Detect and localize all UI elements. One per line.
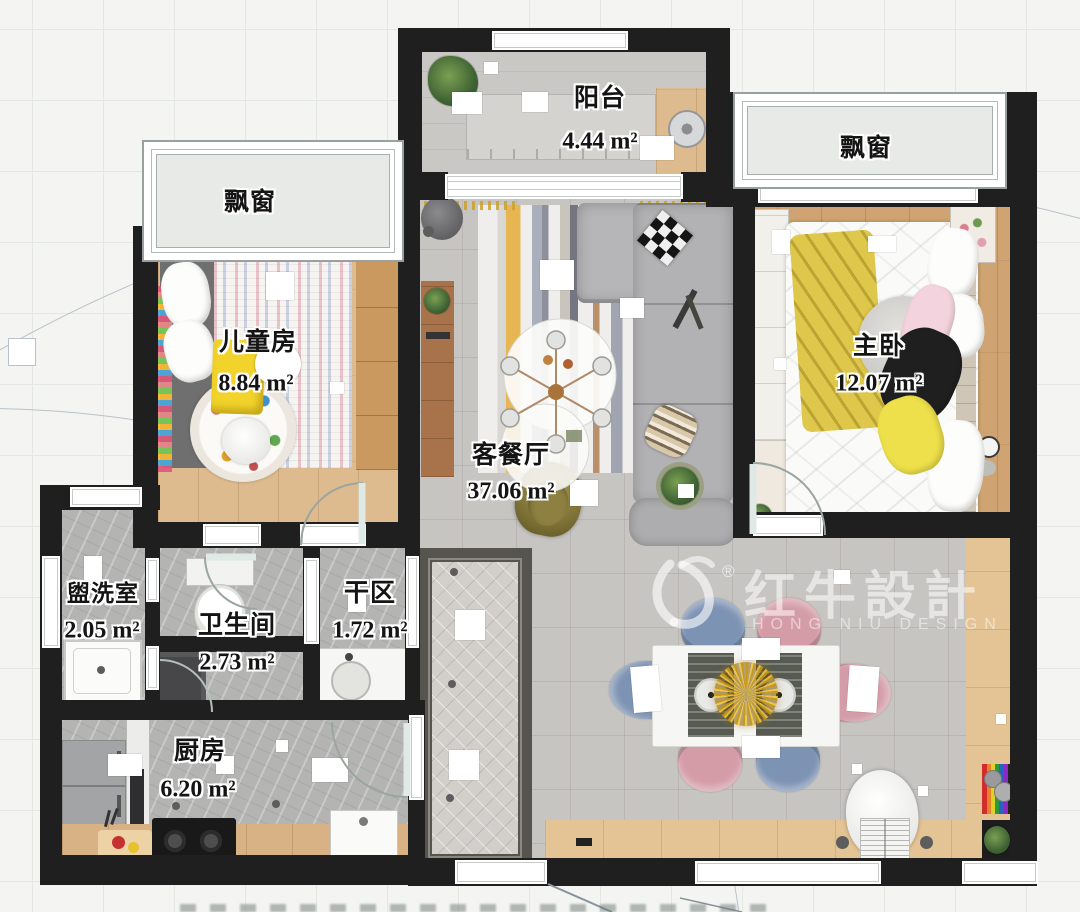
wall [40,700,408,720]
kitchen-tall-cabinet-dark [130,769,144,827]
napkin [742,638,780,660]
entry-door-opening [455,860,547,884]
wall [133,522,420,548]
ceiling-light [774,358,786,370]
kids-stool [222,418,270,464]
label-washroom-area: 2.05 m² [64,618,139,645]
bathroom-dry-slider [304,558,319,644]
dry-area-opening [406,556,419,648]
label-kids-name: 儿童房 [219,322,297,358]
bathroom-door-opening [203,524,261,546]
burner [200,830,222,852]
label-living-name: 客餐厅 [472,435,550,471]
lemon [128,842,139,853]
label-master-name: 主卧 [853,326,905,362]
label-bathroom-area: 2.73 m² [199,650,274,677]
label-bathroom-name: 卫生间 [198,605,276,641]
ceiling-light [570,480,598,506]
washroom-window [70,487,142,507]
napkin [742,736,780,758]
spot-light [423,226,434,237]
ceiling-light [868,236,896,252]
ceiling-light [918,786,928,796]
ceiling-light [484,62,498,74]
label-bay-window-master: 飘窗 [840,128,892,164]
open-book [860,818,910,862]
gold-centerpiece [714,662,778,726]
spot-light [446,794,454,802]
master-door-opening [753,515,823,536]
ceiling-light [312,758,348,782]
corridor-rug-field [432,562,518,854]
wall [40,855,420,885]
ceiling-light [276,740,288,752]
kids-wardrobe [356,252,400,470]
wall [40,485,62,885]
vanity-faucet [345,653,353,661]
doormat-handle [576,838,592,846]
label-living-area: 37.06 m² [467,479,554,506]
spot-light [836,836,849,849]
washroom-sliding-door [146,646,159,690]
tomato [112,836,125,849]
spot-light [920,836,933,849]
ceiling-light [452,92,482,114]
corridor-rug [418,548,532,868]
toilet-tank [186,558,254,586]
tv-cabinet-plant [424,288,450,314]
bottom-window [962,861,1038,884]
chair-pad [846,665,879,713]
fridge-handle [117,795,121,817]
label-balcony-name: 阳台 [574,78,626,114]
ceiling-light [455,610,485,640]
washroom-sliding-door [146,558,159,602]
kitchen-door-opening [409,715,424,800]
ceiling-light [852,764,862,774]
cropped-caption-text [180,904,780,912]
ceiling-light [108,754,142,776]
washbasin [64,640,142,706]
label-dry-area-name: 干区 [344,573,396,609]
potted-plant [984,826,1010,854]
wall [733,180,755,538]
entry-wood-strip-bottom [545,820,985,862]
left-wall-window [42,556,60,648]
floorplan-canvas: 阳台 4.44 m² 飘窗 飘窗 儿童房 8.84 m² 主卧 12.07 m²… [0,0,1080,912]
label-dry-area-area: 1.72 m² [332,618,407,645]
washbasin-drain [97,666,105,674]
label-balcony-area: 4.44 m² [562,129,637,156]
ceiling-light [678,484,694,498]
balcony-sliding-door [445,174,683,199]
vanity-sink [331,661,371,701]
label-master-area: 12.07 m² [835,371,922,398]
ceiling-light [996,714,1006,724]
ceiling-light [772,230,790,254]
burner [164,830,186,852]
spot-light [272,800,280,808]
spot-light [448,680,456,688]
tv-cabinet-item [426,332,450,339]
wall [1010,180,1037,886]
label-kids-area: 8.84 m² [218,371,293,398]
chair-pad [630,665,662,713]
balcony-top-window [492,31,628,50]
label-kitchen-area: 6.20 m² [160,777,235,804]
ceiling-light [266,272,294,300]
label-kitchen-name: 厨房 [174,731,226,767]
ceiling-light [330,382,344,394]
ceiling-light [522,92,548,112]
background-marker [8,338,36,366]
label-washroom-name: 盥洗室 [67,574,139,608]
ceiling-light [640,136,674,160]
ceiling-light [834,570,850,584]
bottom-window [695,861,881,884]
kids-door-opening [300,524,366,546]
ceiling-light [620,298,644,318]
spot-light [450,568,458,576]
ceiling-light [540,260,574,290]
ceiling-light [449,750,479,780]
kitchen-faucet [359,817,368,826]
label-bay-window-kids: 飘窗 [224,182,276,218]
